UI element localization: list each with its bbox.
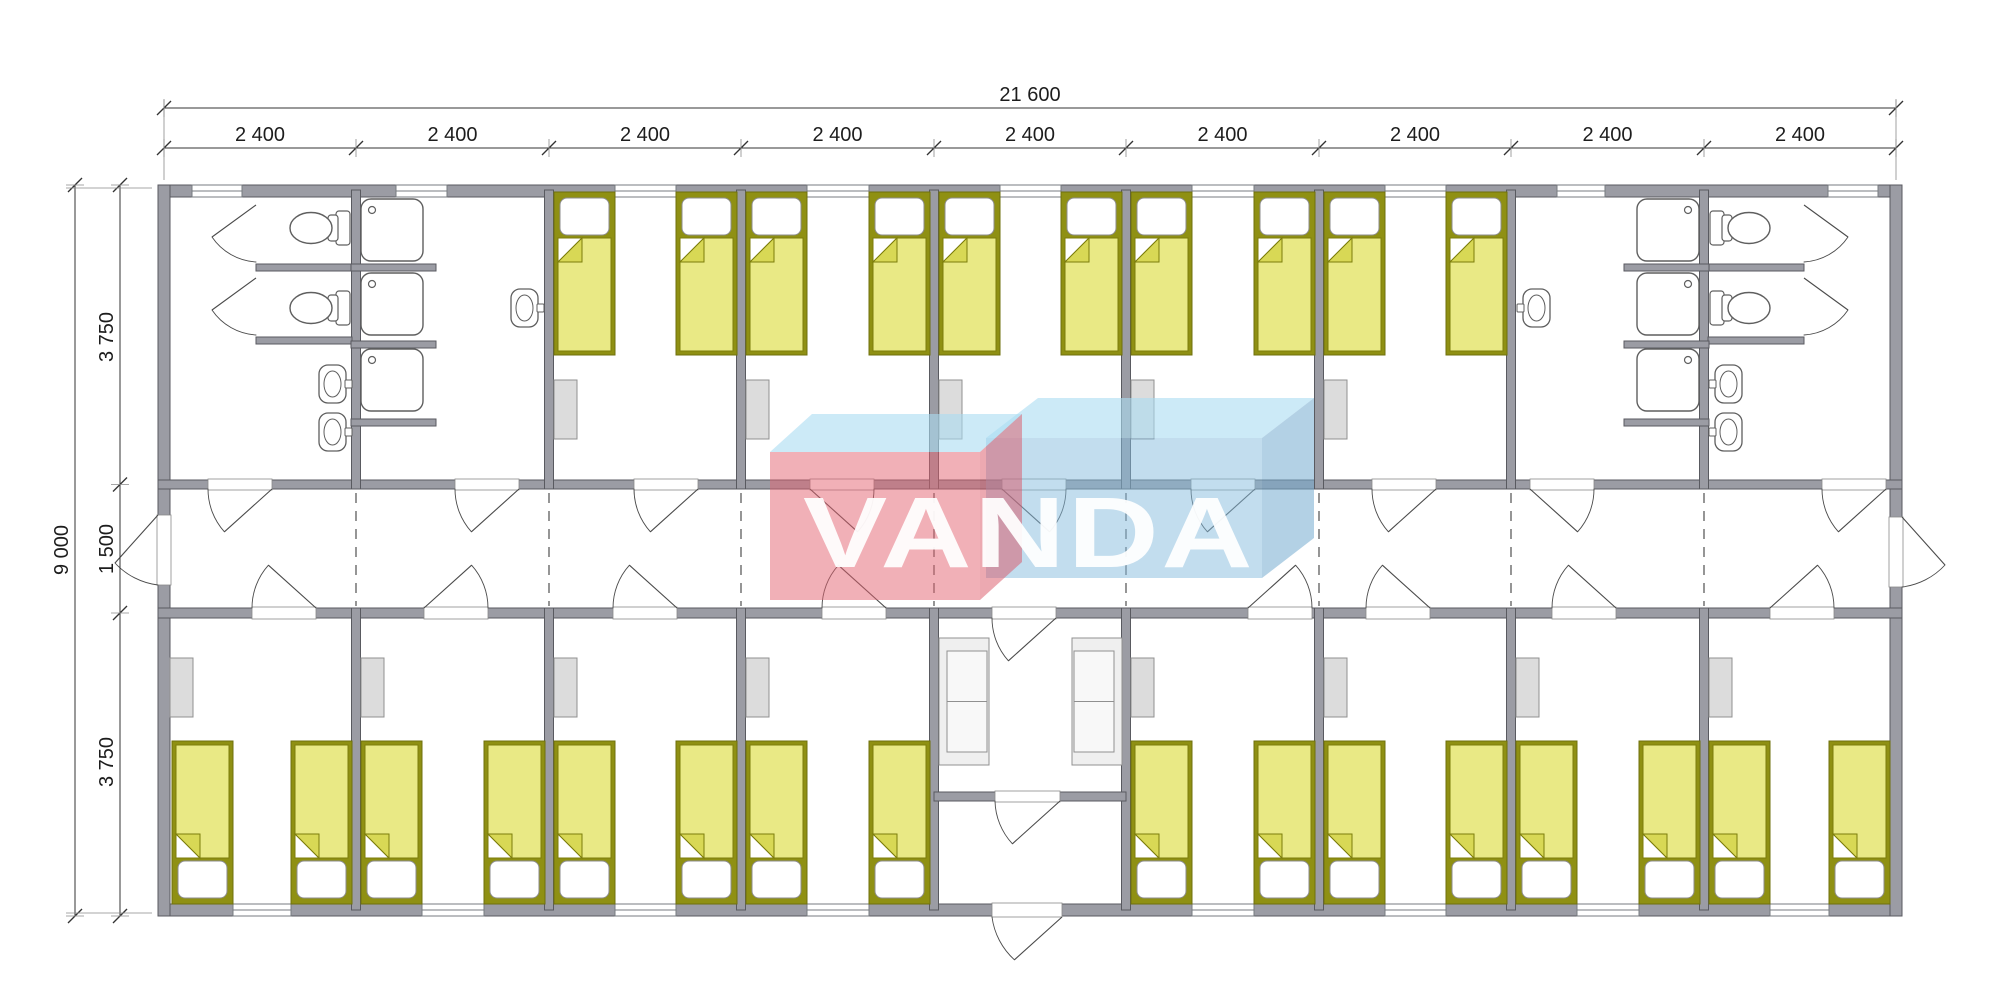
- bed-pillow: [560, 198, 609, 235]
- door-opening: [1822, 479, 1886, 490]
- bed: [746, 741, 807, 904]
- wall: [256, 264, 352, 271]
- bed-pillow: [752, 198, 801, 235]
- door-opening: [1366, 607, 1430, 619]
- door-opening: [208, 479, 272, 490]
- door-swing: [1530, 489, 1594, 532]
- bed-pillow: [945, 198, 994, 235]
- sofa: [939, 638, 989, 765]
- door-arc: [995, 801, 1012, 844]
- wall: [545, 608, 554, 910]
- door-opening: [252, 607, 316, 619]
- wardrobe: [554, 658, 577, 717]
- door-leaf: [1902, 517, 1945, 565]
- door-leaf: [1770, 565, 1818, 608]
- door-opening: [1372, 479, 1436, 490]
- door-arc: [115, 563, 158, 585]
- bed-pillow: [752, 861, 801, 898]
- bed-pillow: [682, 198, 731, 235]
- door-leaf: [212, 205, 256, 237]
- wardrobe: [1131, 658, 1154, 717]
- door-arc: [634, 489, 650, 532]
- shower-stall: [361, 199, 423, 261]
- shower-tray: [1637, 199, 1699, 261]
- bed: [1324, 192, 1385, 355]
- door-leaf: [1530, 489, 1578, 532]
- door-leaf: [629, 565, 677, 608]
- module-width-label: 2 400: [620, 124, 670, 146]
- door-arc: [1366, 565, 1382, 608]
- door-swing: [992, 618, 1056, 661]
- door-swing: [1804, 278, 1848, 335]
- door-arc: [472, 565, 488, 608]
- module-width-label: 2 400: [1582, 124, 1632, 146]
- overall-width-label: 21 600: [999, 84, 1060, 106]
- wall: [1624, 341, 1709, 348]
- module-width-label: 2 400: [427, 124, 477, 146]
- door-arc: [1902, 565, 1945, 587]
- shower-tray: [1637, 273, 1699, 335]
- wall: [1700, 608, 1709, 910]
- door-opening: [157, 515, 171, 585]
- basin-tap: [345, 380, 352, 388]
- door-swing: [1372, 489, 1436, 532]
- wardrobe: [170, 658, 193, 717]
- wardrobe: [1516, 658, 1539, 717]
- wardrobe: [746, 380, 769, 439]
- door-opening: [1552, 607, 1616, 619]
- bed-pillow: [178, 861, 227, 898]
- door-swing: [1804, 205, 1848, 262]
- wall: [545, 190, 554, 489]
- wall: [1315, 190, 1324, 489]
- toilet: [290, 291, 350, 325]
- bed-pillow: [1137, 861, 1186, 898]
- bed-pillow: [1452, 198, 1501, 235]
- shower-stall: [361, 273, 423, 335]
- door-leaf: [224, 489, 272, 532]
- bed-pillow: [875, 861, 924, 898]
- top-depth-label: 3 750: [96, 312, 118, 362]
- bed: [1446, 192, 1507, 355]
- bed: [291, 741, 352, 904]
- door-arc: [1822, 489, 1838, 532]
- wash-basin: [1709, 413, 1742, 451]
- door-opening: [992, 903, 1062, 917]
- bed-pillow: [875, 198, 924, 235]
- door-opening: [995, 791, 1060, 802]
- bed: [484, 741, 545, 904]
- bed-pillow: [1452, 861, 1501, 898]
- wardrobe: [1324, 380, 1347, 439]
- wardrobe: [361, 658, 384, 717]
- door-arc: [1578, 489, 1594, 532]
- door-swing: [252, 565, 316, 608]
- door-swing: [613, 565, 677, 608]
- door-arc: [1372, 489, 1388, 532]
- bed-pillow: [1330, 861, 1379, 898]
- wardrobe: [554, 380, 577, 439]
- wash-basin: [511, 289, 544, 327]
- wash-basin: [1517, 289, 1550, 327]
- bed: [1639, 741, 1700, 904]
- wall: [1315, 608, 1324, 910]
- module-width-label: 2 400: [1005, 124, 1055, 146]
- door-leaf: [1838, 489, 1886, 532]
- door-opening: [822, 607, 886, 619]
- door-swing: [995, 801, 1060, 844]
- toilet: [1710, 211, 1770, 245]
- bed: [869, 192, 930, 355]
- shower-tray: [361, 273, 423, 335]
- door-leaf: [1014, 917, 1062, 960]
- door-leaf: [424, 565, 472, 608]
- bed: [1324, 741, 1385, 904]
- door-leaf: [650, 489, 698, 532]
- bed: [1131, 741, 1192, 904]
- wardrobe: [746, 658, 769, 717]
- bed: [1709, 741, 1770, 904]
- door-leaf: [1008, 618, 1056, 661]
- bed: [1061, 192, 1122, 355]
- wardrobe: [1324, 658, 1347, 717]
- door-arc: [1804, 237, 1848, 262]
- door-arc: [1818, 565, 1834, 608]
- door-leaf: [212, 278, 256, 310]
- bed: [676, 192, 737, 355]
- wall: [1624, 419, 1709, 426]
- bed: [1516, 741, 1577, 904]
- watermark-box-red-top: [770, 414, 1022, 452]
- basin-tap: [537, 304, 544, 312]
- bed-pillow: [682, 861, 731, 898]
- module-width-label: 2 400: [1390, 124, 1440, 146]
- wall: [1507, 608, 1516, 910]
- door-swing: [212, 205, 256, 262]
- door-swing: [1770, 565, 1834, 608]
- door-opening: [634, 479, 698, 490]
- watermark-box-blue-top: [986, 398, 1314, 438]
- wall: [1122, 608, 1131, 910]
- door-swing: [634, 489, 698, 532]
- door-arc: [992, 917, 1014, 960]
- door-swing: [1552, 565, 1616, 608]
- bed: [676, 741, 737, 904]
- door-opening: [1248, 607, 1312, 619]
- basin-tap: [1517, 304, 1524, 312]
- bed: [172, 741, 233, 904]
- module-width-label: 2 400: [1197, 124, 1247, 146]
- door-leaf: [1012, 801, 1060, 844]
- bed-pillow: [1137, 198, 1186, 235]
- door-arc: [992, 618, 1008, 661]
- bed: [361, 741, 422, 904]
- wall: [930, 608, 939, 910]
- wall: [737, 608, 746, 910]
- bed: [554, 741, 615, 904]
- toilet: [290, 211, 350, 245]
- sofa: [1072, 638, 1122, 765]
- shower-stall: [1637, 273, 1699, 335]
- floor-plan-canvas: 21 6002 4002 4002 4002 4002 4002 4002 40…: [0, 0, 2000, 999]
- door-swing: [424, 565, 488, 608]
- bed-pillow: [1835, 861, 1884, 898]
- bed-pillow: [367, 861, 416, 898]
- wall: [256, 337, 352, 344]
- bed-pillow: [1715, 861, 1764, 898]
- shower-stall: [1637, 199, 1699, 261]
- door-arc: [252, 565, 268, 608]
- bed-pillow: [1260, 861, 1309, 898]
- door-arc: [1804, 310, 1848, 335]
- door-opening: [992, 607, 1056, 619]
- door-arc: [212, 237, 256, 262]
- basin-tap: [1709, 428, 1716, 436]
- vanda-watermark: VANDA: [770, 398, 1314, 600]
- door-leaf: [1568, 565, 1616, 608]
- bed-pillow: [1067, 198, 1116, 235]
- bed-pillow: [1645, 861, 1694, 898]
- bed-pillow: [297, 861, 346, 898]
- bed: [554, 192, 615, 355]
- bed: [1254, 741, 1315, 904]
- toilet-bowl: [290, 213, 332, 244]
- door-opening: [1770, 607, 1834, 619]
- wash-basin: [319, 365, 352, 403]
- bed: [746, 192, 807, 355]
- wardrobe: [1709, 658, 1732, 717]
- door-leaf: [268, 565, 316, 608]
- bed-pillow: [560, 861, 609, 898]
- toilet-bowl: [1728, 293, 1770, 324]
- wall: [351, 264, 436, 271]
- door-swing: [212, 278, 256, 335]
- wall: [1708, 264, 1804, 271]
- door-arc: [208, 489, 224, 532]
- door-leaf: [1804, 205, 1848, 237]
- wall: [352, 190, 361, 489]
- watermark-text: VANDA: [803, 477, 1255, 589]
- bed: [1829, 741, 1890, 904]
- toilet-bowl: [290, 293, 332, 324]
- wall: [1708, 337, 1804, 344]
- wall: [1624, 264, 1709, 271]
- door-opening: [1530, 479, 1594, 490]
- wash-basin: [319, 413, 352, 451]
- bed: [1254, 192, 1315, 355]
- door-arc: [1552, 565, 1568, 608]
- basin-tap: [1709, 380, 1716, 388]
- door-leaf: [1382, 565, 1430, 608]
- door-leaf: [115, 515, 158, 563]
- door-arc: [613, 565, 629, 608]
- door-swing: [1822, 489, 1886, 532]
- wall: [737, 190, 746, 489]
- door-leaf: [1388, 489, 1436, 532]
- module-width-label: 2 400: [812, 124, 862, 146]
- bottom-depth-label: 3 750: [96, 737, 118, 787]
- wall: [1507, 190, 1516, 489]
- door-arc: [1296, 565, 1312, 608]
- wall: [351, 341, 436, 348]
- shower-tray: [1637, 349, 1699, 411]
- door-opening: [613, 607, 677, 619]
- shower-tray: [361, 199, 423, 261]
- bed: [1446, 741, 1507, 904]
- door-opening: [424, 607, 488, 619]
- door-leaf: [471, 489, 519, 532]
- door-swing: [1902, 517, 1945, 587]
- floor-plan-svg: 21 6002 4002 4002 4002 4002 4002 4002 40…: [0, 0, 2000, 999]
- shower-stall: [1637, 349, 1699, 411]
- door-arc: [455, 489, 471, 532]
- module-width-label: 2 400: [1775, 124, 1825, 146]
- bed-pillow: [1522, 861, 1571, 898]
- toilet: [1710, 291, 1770, 325]
- door-opening: [455, 479, 519, 490]
- door-opening: [1889, 517, 1903, 587]
- door-swing: [455, 489, 519, 532]
- bed: [869, 741, 930, 904]
- wall: [1700, 190, 1709, 489]
- door-swing: [1366, 565, 1430, 608]
- basin-tap: [345, 428, 352, 436]
- door-swing: [992, 917, 1062, 960]
- shower-tray: [361, 349, 423, 411]
- door-swing: [115, 515, 158, 585]
- overall-height-label: 9 000: [51, 525, 73, 575]
- wall: [352, 608, 361, 910]
- door-arc: [212, 310, 256, 335]
- toilet-bowl: [1728, 213, 1770, 244]
- wash-basin: [1709, 365, 1742, 403]
- module-width-label: 2 400: [235, 124, 285, 146]
- corridor-width-label: 1 500: [96, 524, 118, 574]
- door-leaf: [1804, 278, 1848, 310]
- bed-pillow: [1260, 198, 1309, 235]
- shower-stall: [361, 349, 423, 411]
- door-swing: [208, 489, 272, 532]
- bed: [939, 192, 1000, 355]
- bed: [1131, 192, 1192, 355]
- bed-pillow: [1330, 198, 1379, 235]
- wall: [351, 419, 436, 426]
- bed-pillow: [490, 861, 539, 898]
